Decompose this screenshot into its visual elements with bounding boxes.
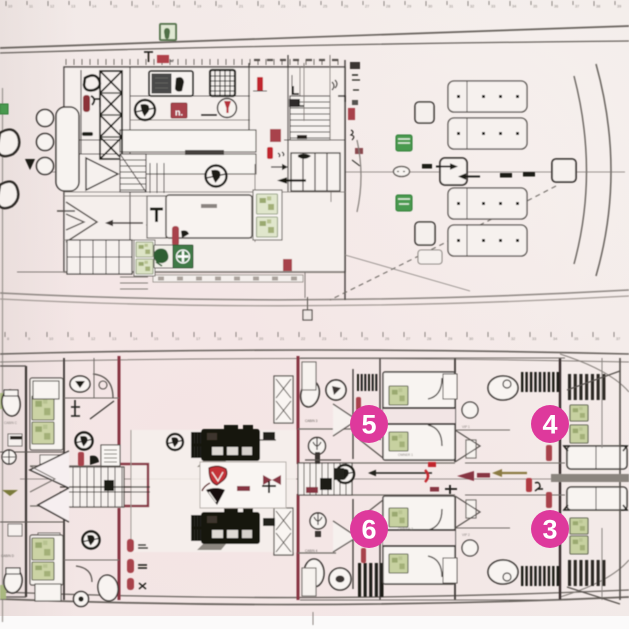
svg-text:25: 25 <box>364 337 368 341</box>
svg-text:9: 9 <box>28 337 30 341</box>
svg-text:6: 6 <box>361 515 376 545</box>
svg-text:CABIN D: CABIN D <box>1 554 15 558</box>
svg-text:36: 36 <box>554 5 558 9</box>
svg-text:12: 12 <box>50 5 54 9</box>
svg-text:OWNER 2: OWNER 2 <box>398 527 413 531</box>
svg-text:38: 38 <box>596 5 600 9</box>
svg-text:35: 35 <box>533 5 537 9</box>
svg-text:21: 21 <box>280 337 284 341</box>
svg-text:34: 34 <box>553 337 557 341</box>
svg-text:30: 30 <box>469 337 473 341</box>
svg-text:3: 3 <box>542 515 557 545</box>
svg-text:24: 24 <box>343 337 347 341</box>
svg-text:32: 32 <box>511 337 515 341</box>
svg-text:22: 22 <box>301 337 305 341</box>
svg-text:33: 33 <box>532 337 536 341</box>
svg-text:15: 15 <box>154 337 158 341</box>
svg-text:31: 31 <box>490 337 494 341</box>
svg-text:11: 11 <box>70 337 74 341</box>
svg-text:8: 8 <box>7 337 9 341</box>
svg-text:18: 18 <box>176 5 180 9</box>
svg-text:36: 36 <box>595 337 599 341</box>
svg-text:5: 5 <box>361 410 376 440</box>
svg-text:13: 13 <box>71 5 75 9</box>
svg-text:33: 33 <box>491 5 495 9</box>
svg-text:14: 14 <box>133 337 137 341</box>
svg-text:30: 30 <box>428 5 432 9</box>
svg-text:35: 35 <box>574 337 578 341</box>
svg-text:37: 37 <box>575 5 579 9</box>
svg-text:18: 18 <box>217 337 221 341</box>
svg-text:28: 28 <box>386 5 390 9</box>
svg-text:CABIN C: CABIN C <box>4 421 18 425</box>
svg-text:32: 32 <box>470 5 474 9</box>
svg-text:27: 27 <box>365 5 369 9</box>
svg-text:37: 37 <box>616 337 620 341</box>
svg-text:17: 17 <box>196 337 200 341</box>
svg-text:10: 10 <box>49 337 53 341</box>
svg-text:21: 21 <box>239 5 243 9</box>
svg-text:13: 13 <box>112 337 116 341</box>
svg-text:CABIN 4: CABIN 4 <box>305 549 318 553</box>
svg-text:VIP 1: VIP 1 <box>462 425 470 429</box>
svg-text:20: 20 <box>259 337 263 341</box>
svg-text:OWNER 1: OWNER 1 <box>398 453 413 457</box>
svg-text:24: 24 <box>302 5 306 9</box>
svg-text:19: 19 <box>238 337 242 341</box>
svg-text:VIP 2: VIP 2 <box>462 533 470 537</box>
svg-text:29: 29 <box>448 337 452 341</box>
svg-text:22: 22 <box>260 5 264 9</box>
svg-text:17: 17 <box>155 5 159 9</box>
svg-text:34: 34 <box>512 5 516 9</box>
svg-text:11: 11 <box>29 5 33 9</box>
svg-text:n.: n. <box>175 108 183 118</box>
svg-text:CABIN 3: CABIN 3 <box>305 419 318 423</box>
svg-text:4: 4 <box>542 410 557 440</box>
svg-text:19: 19 <box>197 5 201 9</box>
svg-text:16: 16 <box>134 5 138 9</box>
svg-text:29: 29 <box>407 5 411 9</box>
svg-text:39: 39 <box>617 5 621 9</box>
svg-text:12: 12 <box>91 337 95 341</box>
svg-text:16: 16 <box>175 337 179 341</box>
svg-text:20: 20 <box>218 5 222 9</box>
svg-text:27: 27 <box>406 337 410 341</box>
svg-text:26: 26 <box>344 5 348 9</box>
svg-text:15: 15 <box>113 5 117 9</box>
svg-text:28: 28 <box>427 337 431 341</box>
svg-text:25: 25 <box>323 5 327 9</box>
svg-text:31: 31 <box>449 5 453 9</box>
svg-text:23: 23 <box>322 337 326 341</box>
svg-text:14: 14 <box>92 5 96 9</box>
svg-text:10: 10 <box>8 5 12 9</box>
svg-text:26: 26 <box>385 337 389 341</box>
svg-text:23: 23 <box>281 5 285 9</box>
